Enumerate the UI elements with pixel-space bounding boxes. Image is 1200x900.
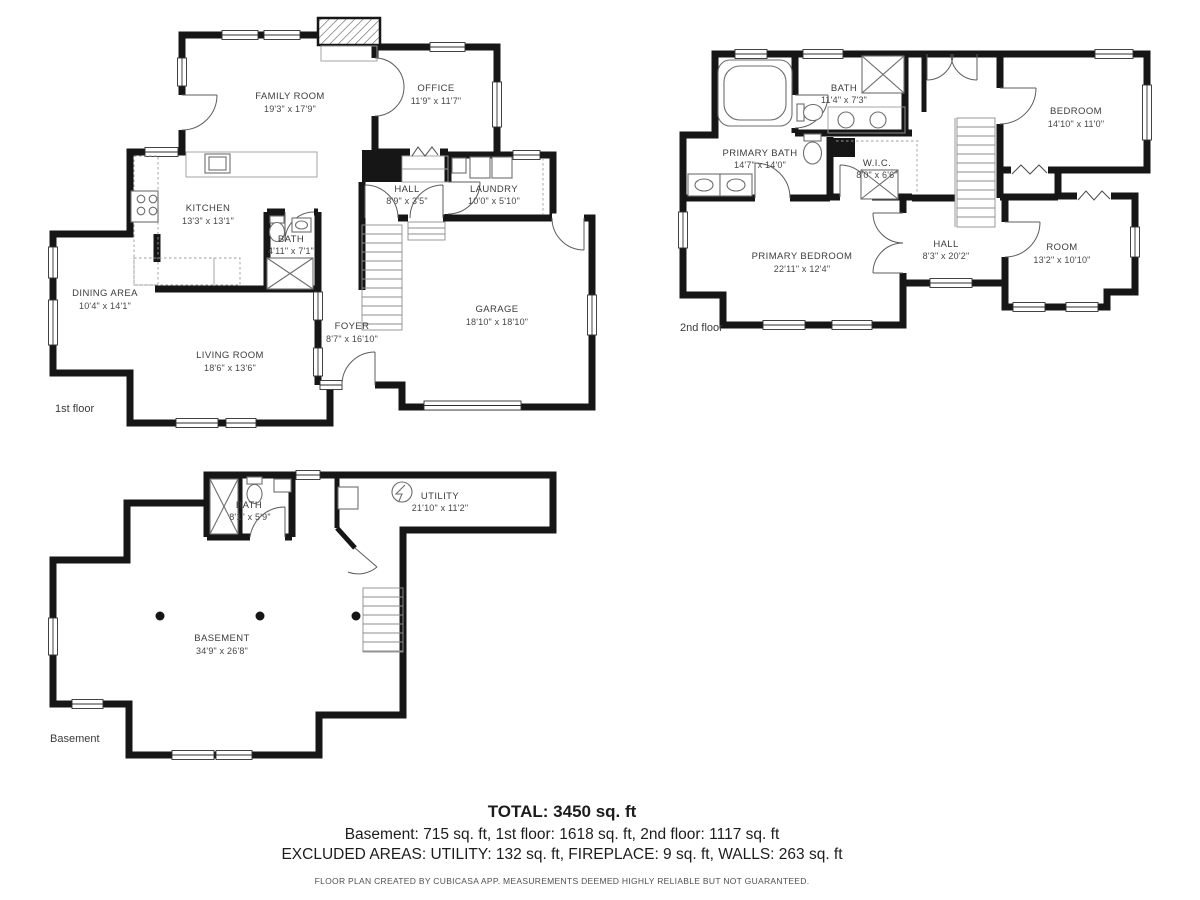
door-arc xyxy=(348,548,377,574)
window xyxy=(513,151,540,160)
window xyxy=(72,700,103,709)
second-floor-fixtures xyxy=(688,56,1110,200)
floor-areas-text: Basement: 715 sq. ft, 1st floor: 1618 sq… xyxy=(0,826,1124,844)
floor-label-2nd: 2nd floor xyxy=(680,322,723,334)
window xyxy=(832,321,872,330)
window xyxy=(430,43,465,52)
room-dims-wic: 8'0" x 6'6" xyxy=(856,170,898,180)
wall-opening xyxy=(314,292,323,320)
disclaimer-text: FLOOR PLAN CREATED BY CUBICASA APP. MEAS… xyxy=(0,876,1124,886)
floor-label-basement: Basement xyxy=(50,733,100,745)
door-arc xyxy=(1005,222,1040,257)
room-label-bath1: BATH xyxy=(278,234,304,245)
room-dims-living: 18'6" x 13'6" xyxy=(204,363,256,373)
basement-windows xyxy=(49,471,321,760)
room-dims-bedroom: 14'10" x 11'0" xyxy=(1048,119,1105,129)
sink-icon xyxy=(720,174,752,196)
window xyxy=(735,50,767,59)
basement-stairs xyxy=(363,588,403,652)
window xyxy=(222,31,258,40)
room-dims-primary-bedroom: 22'11" x 12'4" xyxy=(774,264,831,274)
window xyxy=(264,31,300,40)
door-arc xyxy=(182,95,217,130)
room-label-primary-bath: PRIMARY BATH xyxy=(722,148,797,159)
fireplace-icon xyxy=(318,18,380,61)
hall-closet xyxy=(402,156,448,182)
window xyxy=(588,295,597,335)
toilet-icon xyxy=(804,134,822,164)
window xyxy=(803,50,843,59)
window xyxy=(1066,303,1098,312)
window xyxy=(178,58,187,86)
window xyxy=(49,247,58,278)
window xyxy=(172,751,214,760)
window xyxy=(176,419,218,428)
first-floor-stairs xyxy=(362,225,402,330)
summary-footer: TOTAL: 3450 sq. ft Basement: 715 sq. ft,… xyxy=(0,802,1124,886)
room-label-utility: UTILITY xyxy=(421,491,459,502)
kitchen-counter xyxy=(134,258,240,285)
window xyxy=(679,212,688,248)
wall-opening xyxy=(314,348,323,376)
support-column xyxy=(156,612,165,621)
first-floor-fixtures xyxy=(131,18,543,410)
first-floor-plan: FAMILY ROOM 19'3" x 17'9" OFFICE 11'9" x… xyxy=(49,18,597,428)
room-dims-room: 13'2" x 10'10" xyxy=(1033,255,1090,265)
room-dims-laundry: 10'0" x 5'10" xyxy=(468,196,520,206)
chimney xyxy=(362,150,402,182)
room-dims-dining: 10'4" x 14'1" xyxy=(79,301,131,311)
shower-icon xyxy=(862,56,904,93)
washer-icon xyxy=(470,157,490,178)
sink-icon xyxy=(870,112,886,128)
second-floor-plan: BATH 11'4" x 7'3" BEDROOM 14'10" x 11'0"… xyxy=(679,50,1152,335)
garage-steps xyxy=(408,222,445,240)
window xyxy=(1131,227,1140,257)
total-area-text: TOTAL: 3450 sq. ft xyxy=(0,802,1124,822)
room-dims-foyer: 8'7" x 16'10" xyxy=(326,334,378,344)
first-floor-door-gaps xyxy=(178,95,585,390)
window xyxy=(145,148,178,157)
laundry-sink-icon xyxy=(452,158,466,173)
window xyxy=(763,321,805,330)
room-label-office: OFFICE xyxy=(417,83,454,94)
room-label-garage: GARAGE xyxy=(475,304,518,315)
vanity-counter xyxy=(828,107,905,133)
sink-icon xyxy=(292,218,311,232)
room-label-family-room: FAMILY ROOM xyxy=(255,91,325,102)
window xyxy=(49,300,58,345)
window xyxy=(296,471,320,480)
room-label-primary-bedroom: PRIMARY BEDROOM xyxy=(752,251,853,262)
door-arc xyxy=(1000,88,1036,124)
window xyxy=(1013,303,1045,312)
kitchen-sink-icon xyxy=(205,154,230,173)
entry-door-arc xyxy=(342,352,375,385)
room-label-laundry: LAUNDRY xyxy=(470,184,518,195)
support-column xyxy=(352,612,361,621)
window xyxy=(930,279,972,288)
room-dims-primary-bath: 14'7" x 14'0" xyxy=(734,160,786,170)
room-dims-bath2: 11'4" x 7'3" xyxy=(821,95,867,105)
first-floor-labels: FAMILY ROOM 19'3" x 17'9" OFFICE 11'9" x… xyxy=(55,83,528,415)
room-label-hall: HALL xyxy=(394,184,419,195)
window xyxy=(1095,50,1133,59)
room-label-bath-basement: BATH xyxy=(236,500,262,511)
window xyxy=(493,82,502,127)
room-dims-kitchen: 13'3" x 13'1" xyxy=(182,216,234,226)
second-floor-stairs xyxy=(955,118,995,227)
room-dims-family-room: 19'3" x 17'9" xyxy=(264,104,316,114)
room-dims-office: 11'9" x 11'7" xyxy=(411,96,462,106)
room-dims-basement: 34'9" x 26'8" xyxy=(196,646,248,656)
shower-icon xyxy=(210,479,238,534)
room-label-bath2: BATH xyxy=(831,83,857,94)
room-label-bedroom: BEDROOM xyxy=(1050,106,1102,117)
room-dims-utility: 21'10" x 11'2" xyxy=(412,503,469,513)
electrical-panel-icon xyxy=(392,482,412,502)
floor-plan-page: FAMILY ROOM 19'3" x 17'9" OFFICE 11'9" x… xyxy=(0,0,1200,900)
window xyxy=(216,751,252,760)
door-arc xyxy=(552,218,584,250)
stove-icon xyxy=(131,191,158,222)
basement-fixtures xyxy=(156,477,413,621)
room-label-wic: W.I.C. xyxy=(863,158,891,169)
window xyxy=(1143,85,1152,140)
support-column xyxy=(256,612,265,621)
basement-walls xyxy=(53,475,553,755)
garage-door xyxy=(424,401,521,410)
room-label-kitchen: KITCHEN xyxy=(186,203,231,214)
room-label-hall2: HALL xyxy=(933,239,958,250)
room-dims-hall: 8'9" x 3'5" xyxy=(386,196,428,206)
room-label-basement: BASEMENT xyxy=(194,633,249,644)
window xyxy=(226,419,256,428)
floor-plan-canvas: FAMILY ROOM 19'3" x 17'9" OFFICE 11'9" x… xyxy=(0,0,1200,900)
floor-label-1st: 1st floor xyxy=(55,403,94,415)
room-dims-hall2: 8'3" x 20'2" xyxy=(923,251,970,261)
closet-door-arcs xyxy=(927,54,977,80)
sink-icon xyxy=(274,479,291,492)
room-label-foyer: FOYER xyxy=(335,321,370,332)
shower-icon xyxy=(267,258,313,289)
utility-equipment xyxy=(338,487,358,509)
room-label-dining: DINING AREA xyxy=(72,288,138,299)
room-dims-bath1: 4'11" x 7'1" xyxy=(268,246,314,256)
room-dims-bath-basement: 8'1" x 5'9" xyxy=(229,512,271,522)
double-door-arc xyxy=(375,58,404,116)
bathtub-icon xyxy=(718,60,792,126)
room-label-living: LIVING ROOM xyxy=(196,350,264,361)
basement-plan: BATH 8'1" x 5'9" UTILITY 21'10" x 11'2" … xyxy=(49,471,554,760)
window xyxy=(320,381,342,390)
sink-icon xyxy=(688,174,720,196)
dryer-icon xyxy=(492,157,512,178)
toilet-icon xyxy=(797,104,823,121)
room-label-room: ROOM xyxy=(1046,242,1077,253)
sink-icon xyxy=(838,112,854,128)
window xyxy=(49,618,58,655)
room-dims-garage: 18'10" x 18'10" xyxy=(466,317,528,327)
excluded-areas-text: EXCLUDED AREAS: UTILITY: 132 sq. ft, FIR… xyxy=(0,846,1124,864)
